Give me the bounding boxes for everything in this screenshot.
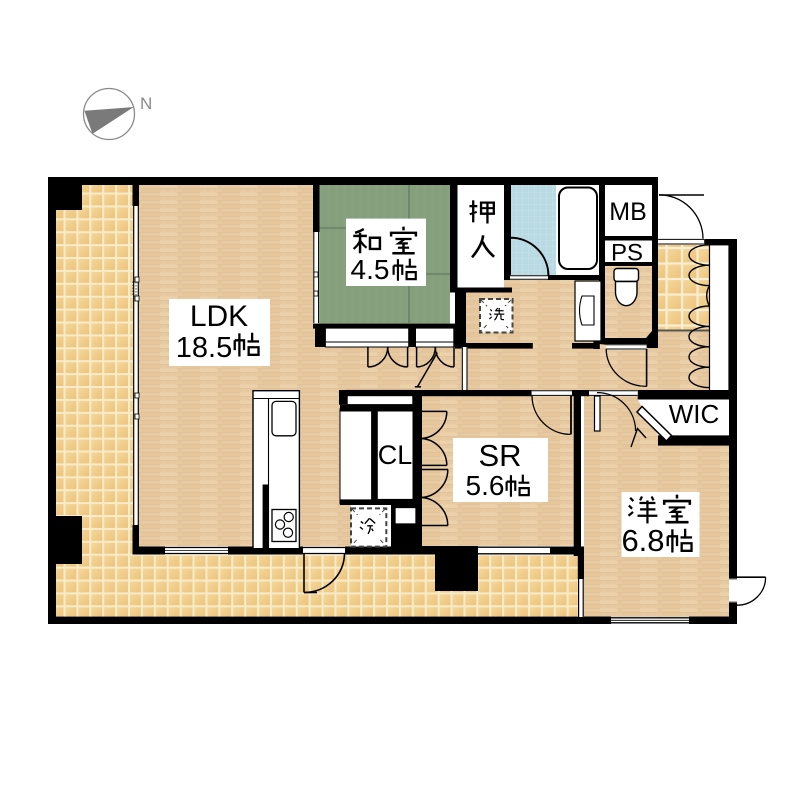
svg-text:5.6: 5.6 (466, 470, 505, 501)
svg-text:18.5: 18.5 (176, 332, 232, 364)
svg-text:CL: CL (378, 440, 413, 470)
svg-text:SR: SR (478, 438, 521, 473)
svg-text:6.8: 6.8 (621, 523, 664, 558)
svg-text:WIC: WIC (669, 399, 720, 429)
svg-text:MB: MB (609, 198, 647, 226)
svg-text:PS: PS (611, 240, 643, 267)
svg-text:N: N (140, 94, 152, 113)
svg-text:4.5: 4.5 (351, 254, 390, 285)
svg-text:LDK: LDK (190, 300, 248, 333)
